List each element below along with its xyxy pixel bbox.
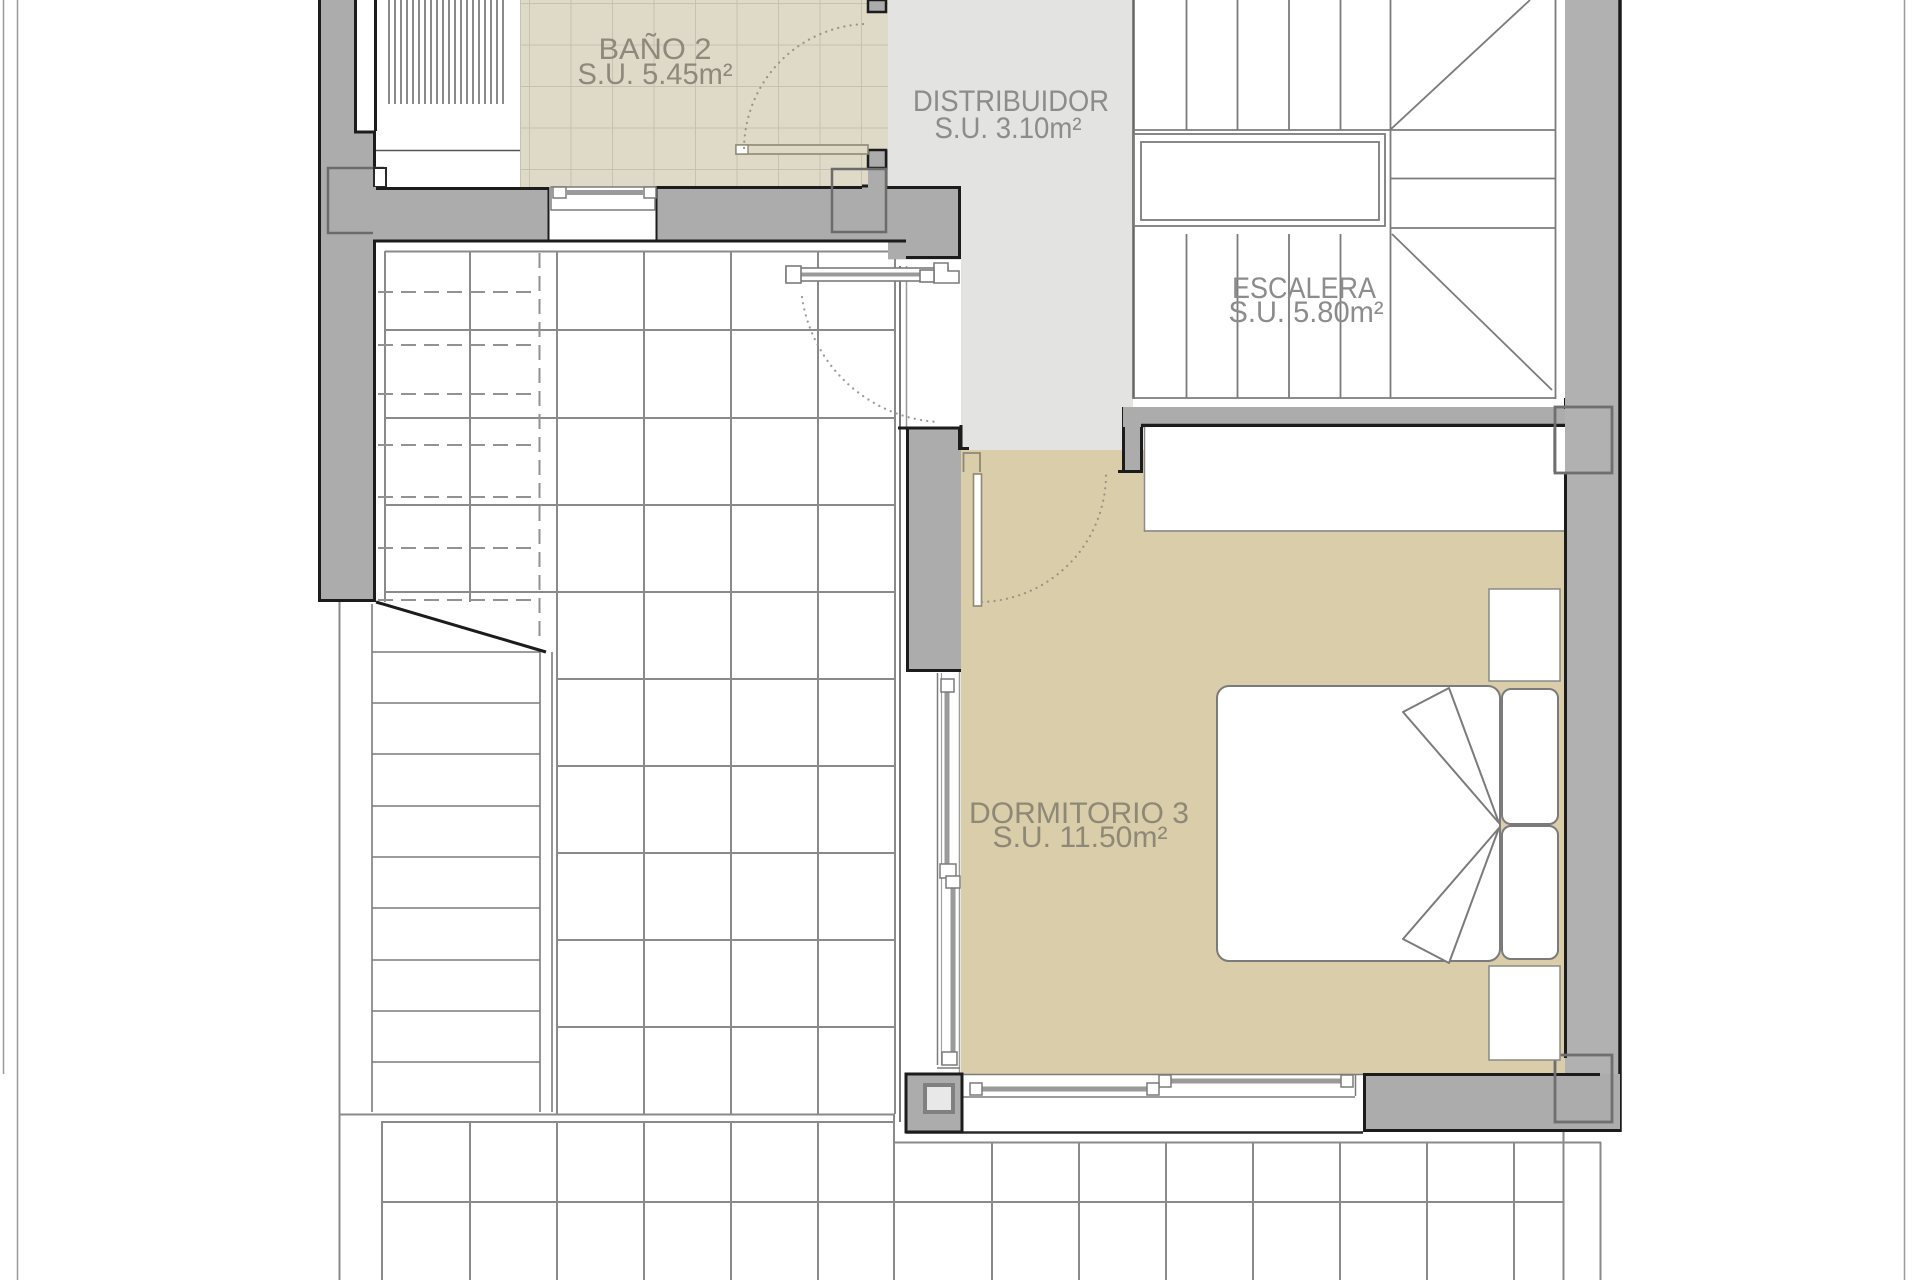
svg-text:S.U. 5.45m²: S.U. 5.45m² bbox=[578, 58, 733, 91]
svg-text:S.U. 11.50m²: S.U. 11.50m² bbox=[993, 821, 1168, 854]
svg-text:S.U. 3.10m²: S.U. 3.10m² bbox=[935, 112, 1082, 145]
svg-text:S.U. 5.80m²: S.U. 5.80m² bbox=[1229, 296, 1384, 329]
